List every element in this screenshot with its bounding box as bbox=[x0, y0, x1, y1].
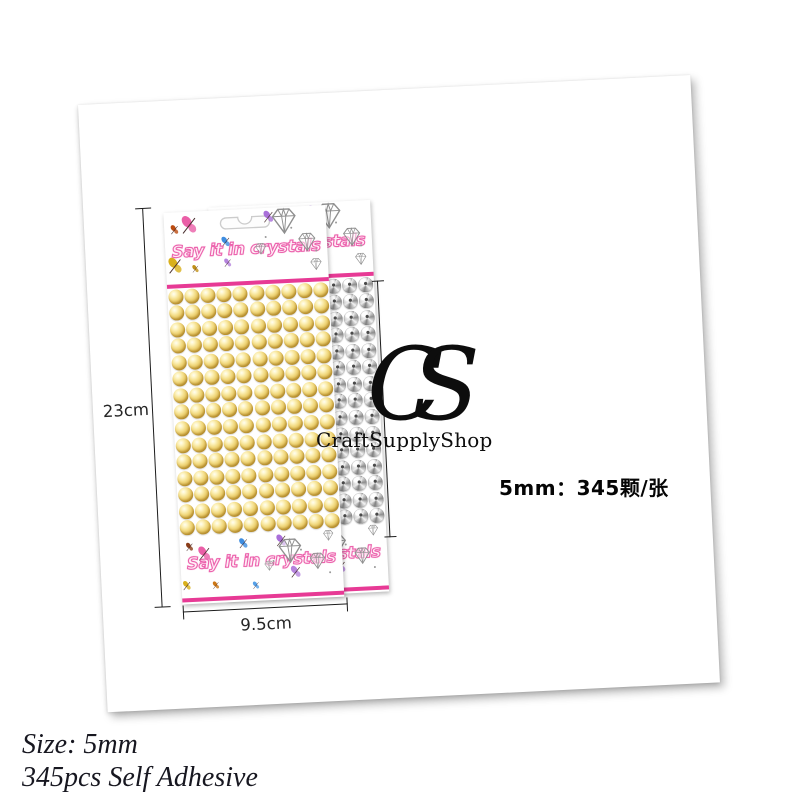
pearl bbox=[174, 421, 190, 437]
pearl bbox=[253, 384, 269, 400]
pearl bbox=[257, 450, 273, 466]
pearl bbox=[219, 336, 235, 352]
diamond-icon bbox=[253, 242, 269, 256]
butterfly-icon bbox=[237, 537, 250, 550]
pearl bbox=[249, 285, 265, 301]
butterfly-icon bbox=[223, 258, 233, 268]
pearl bbox=[343, 294, 359, 310]
diamond-icon bbox=[266, 206, 301, 236]
pearl bbox=[297, 283, 313, 299]
pearl bbox=[184, 288, 200, 304]
pearl bbox=[222, 402, 238, 418]
pearl bbox=[300, 332, 316, 348]
measure-tick bbox=[384, 536, 396, 538]
pearl bbox=[188, 371, 204, 387]
pearl bbox=[251, 334, 267, 350]
pearl bbox=[225, 468, 241, 484]
pearl bbox=[282, 300, 298, 316]
butterfly-icon bbox=[191, 264, 200, 273]
pearl bbox=[275, 499, 291, 515]
pearl bbox=[254, 400, 270, 416]
pearl bbox=[217, 303, 233, 319]
pearl bbox=[207, 419, 223, 435]
pearl bbox=[256, 434, 272, 450]
pearl bbox=[179, 520, 195, 536]
sparkle-dot bbox=[374, 566, 376, 568]
pearl bbox=[220, 369, 236, 385]
pearl bbox=[172, 371, 188, 387]
pearl bbox=[291, 481, 307, 497]
pearl bbox=[241, 467, 257, 483]
pearl bbox=[272, 433, 288, 449]
diamond-icon bbox=[273, 536, 306, 565]
pearl bbox=[187, 354, 203, 370]
pearl bbox=[308, 514, 324, 530]
pearl bbox=[344, 327, 360, 343]
pearl bbox=[190, 420, 206, 436]
pearl bbox=[289, 448, 305, 464]
logo-monogram: CS bbox=[316, 344, 484, 426]
pearl bbox=[360, 310, 376, 326]
pearl bbox=[322, 463, 338, 479]
pearl bbox=[176, 454, 192, 470]
pearl bbox=[208, 452, 224, 468]
pearl bbox=[255, 417, 271, 433]
pearl bbox=[273, 449, 289, 465]
pearl bbox=[291, 498, 307, 514]
pearl bbox=[259, 500, 275, 516]
pearl bbox=[267, 334, 283, 350]
pearl bbox=[260, 516, 276, 532]
pearl bbox=[286, 382, 302, 398]
pearl bbox=[359, 293, 375, 309]
pearl bbox=[242, 484, 258, 500]
measure-tick bbox=[346, 597, 348, 611]
pearl bbox=[283, 333, 299, 349]
pearl bbox=[281, 283, 297, 299]
pearl bbox=[276, 515, 292, 531]
pearl bbox=[224, 435, 240, 451]
butterfly-icon bbox=[179, 214, 201, 236]
pearl bbox=[194, 503, 210, 519]
sparkle-dot bbox=[345, 543, 347, 545]
pearl bbox=[353, 509, 369, 525]
pearl bbox=[287, 415, 303, 431]
pearl bbox=[287, 399, 303, 415]
diamond-icon bbox=[353, 252, 370, 266]
pearl bbox=[323, 480, 339, 496]
pearl bbox=[236, 368, 252, 384]
pearl bbox=[250, 318, 266, 334]
pearl bbox=[237, 385, 253, 401]
pearl bbox=[301, 365, 317, 381]
diamond-icon bbox=[308, 257, 325, 271]
pearl bbox=[194, 486, 210, 502]
pearl bbox=[205, 386, 221, 402]
butterfly-icon bbox=[211, 581, 220, 590]
pearl bbox=[200, 287, 216, 303]
pearl bbox=[367, 458, 383, 474]
butterfly-icon bbox=[184, 542, 194, 552]
pearl bbox=[315, 315, 331, 331]
pearl bbox=[258, 467, 274, 483]
pearl bbox=[351, 459, 367, 475]
pearl bbox=[226, 485, 242, 501]
pearl bbox=[299, 316, 315, 332]
pearl bbox=[268, 350, 284, 366]
pearl bbox=[169, 322, 185, 338]
pearl bbox=[266, 301, 282, 317]
pearl bbox=[218, 320, 234, 336]
pearl bbox=[192, 453, 208, 469]
pearl bbox=[358, 277, 374, 293]
pearl bbox=[271, 416, 287, 432]
pearl bbox=[274, 482, 290, 498]
pearl bbox=[352, 475, 368, 491]
pearl bbox=[186, 321, 202, 337]
pearl bbox=[235, 335, 251, 351]
pearl bbox=[252, 351, 268, 367]
pearl bbox=[186, 338, 202, 354]
pearl bbox=[249, 301, 265, 317]
spec-label: 5mm：345颗/张 bbox=[499, 472, 669, 501]
width-measure-label: 9.5cm bbox=[183, 610, 349, 637]
pearl bbox=[270, 383, 286, 399]
pearl bbox=[193, 470, 209, 486]
pearl bbox=[240, 434, 256, 450]
pearl bbox=[290, 465, 306, 481]
pearl bbox=[292, 515, 308, 531]
sparkle-dot bbox=[360, 244, 362, 246]
sparkle-dot bbox=[300, 549, 302, 551]
pearl bbox=[265, 284, 281, 300]
pearl bbox=[238, 401, 254, 417]
pearl bbox=[219, 353, 235, 369]
pearl bbox=[344, 310, 360, 326]
pearl bbox=[233, 302, 249, 318]
caption-size: Size: 5mm bbox=[22, 728, 258, 761]
caption-count: 345pcs Self Adhesive bbox=[22, 761, 258, 794]
pearl bbox=[232, 286, 248, 302]
pearl bbox=[207, 436, 223, 452]
pearl bbox=[313, 282, 329, 298]
measure-tick bbox=[183, 605, 185, 619]
card-header: Say it in crystals bbox=[163, 205, 328, 285]
pearl bbox=[224, 452, 240, 468]
pearl bbox=[253, 367, 269, 383]
pearl bbox=[270, 400, 286, 416]
diamond-icon bbox=[306, 551, 329, 570]
pearl bbox=[221, 386, 237, 402]
measure-tick bbox=[155, 606, 171, 608]
height-measure-label: 23cm bbox=[101, 400, 150, 421]
card-footer: Say it in crystals bbox=[179, 531, 344, 599]
pearl bbox=[190, 404, 206, 420]
pearl bbox=[324, 496, 340, 512]
pearl bbox=[285, 366, 301, 382]
pearl bbox=[274, 466, 290, 482]
pearl bbox=[189, 387, 205, 403]
butterfly-icon bbox=[181, 580, 193, 592]
pearl bbox=[202, 337, 218, 353]
pearl bbox=[307, 481, 323, 497]
pearl bbox=[298, 299, 314, 315]
measure-tick bbox=[135, 208, 151, 210]
pearl bbox=[175, 437, 191, 453]
pearl bbox=[177, 471, 193, 487]
pearl bbox=[258, 483, 274, 499]
pearl bbox=[284, 349, 300, 365]
pearl bbox=[178, 504, 194, 520]
pearl bbox=[209, 469, 225, 485]
pearl bbox=[228, 518, 244, 534]
diamond-icon bbox=[366, 524, 381, 537]
pearl bbox=[195, 519, 211, 535]
pearl bbox=[168, 289, 184, 305]
pearl bbox=[368, 475, 384, 491]
sparkle-dot bbox=[315, 249, 317, 251]
logo-name: CraftSupplyShop bbox=[316, 428, 484, 452]
pearl bbox=[173, 388, 189, 404]
pearl bbox=[216, 286, 232, 302]
pearl bbox=[234, 319, 250, 335]
measure-tick bbox=[372, 280, 384, 282]
pearl bbox=[300, 349, 316, 365]
watermark-logo: CS CraftSupplyShop bbox=[316, 344, 484, 452]
pearl bbox=[201, 304, 217, 320]
pearl bbox=[170, 338, 186, 354]
pearl bbox=[177, 487, 193, 503]
pearl bbox=[325, 513, 341, 529]
pearl bbox=[369, 508, 385, 524]
pearl bbox=[185, 305, 201, 321]
pearl bbox=[369, 491, 385, 507]
pearl bbox=[241, 451, 257, 467]
pearl bbox=[269, 367, 285, 383]
pearl bbox=[308, 497, 324, 513]
sparkle-dot bbox=[272, 560, 274, 562]
diamond-icon bbox=[351, 546, 374, 565]
sparkle-dot bbox=[290, 227, 292, 229]
pearl bbox=[206, 403, 222, 419]
butterfly-icon bbox=[251, 581, 260, 590]
pearl bbox=[169, 305, 185, 321]
pearl bbox=[239, 418, 255, 434]
caption: Size: 5mm 345pcs Self Adhesive bbox=[22, 728, 258, 794]
pearl bbox=[288, 432, 304, 448]
pearl bbox=[191, 437, 207, 453]
pearl bbox=[211, 502, 227, 518]
pearl bbox=[171, 355, 187, 371]
pearl bbox=[203, 353, 219, 369]
pearl bbox=[210, 485, 226, 501]
product-photo-canvas: Say it in crystals Say it in bbox=[0, 0, 800, 800]
pearl bbox=[211, 518, 227, 534]
pearl bbox=[306, 464, 322, 480]
sparkle-dot bbox=[335, 221, 337, 223]
pearl bbox=[204, 370, 220, 386]
pearl bbox=[244, 517, 260, 533]
pearl bbox=[352, 492, 368, 508]
pearl bbox=[202, 320, 218, 336]
pearl bbox=[236, 352, 252, 368]
sparkle-dot bbox=[265, 236, 267, 238]
pearl bbox=[283, 316, 299, 332]
pearl-grid bbox=[167, 281, 341, 537]
diamond-icon bbox=[321, 529, 336, 542]
pearl bbox=[342, 277, 358, 293]
sparkle-dot bbox=[329, 571, 331, 573]
pearl bbox=[223, 419, 239, 435]
pearl bbox=[243, 500, 259, 516]
pearl bbox=[314, 298, 330, 314]
pearl bbox=[266, 317, 282, 333]
pearl bbox=[173, 404, 189, 420]
pearl bbox=[227, 501, 243, 517]
